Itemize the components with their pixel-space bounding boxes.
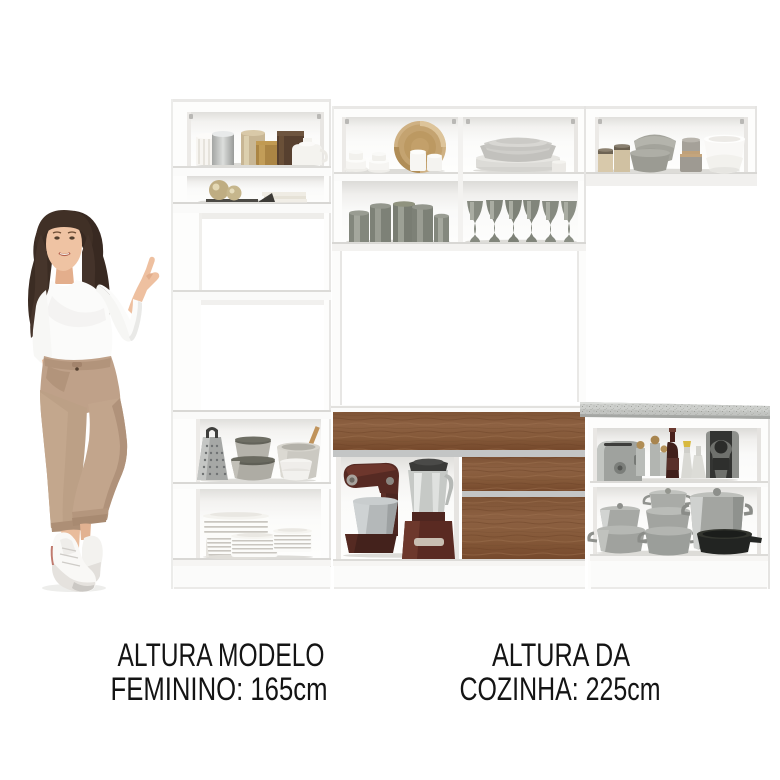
svg-text:FEMININO: 165cm: FEMININO: 165cm <box>111 671 328 707</box>
svg-text:ALTURA DA: ALTURA DA <box>492 637 631 673</box>
svg-text:COZINHA: 225cm: COZINHA: 225cm <box>460 671 661 707</box>
svg-text:ALTURA MODELO: ALTURA MODELO <box>118 637 325 673</box>
